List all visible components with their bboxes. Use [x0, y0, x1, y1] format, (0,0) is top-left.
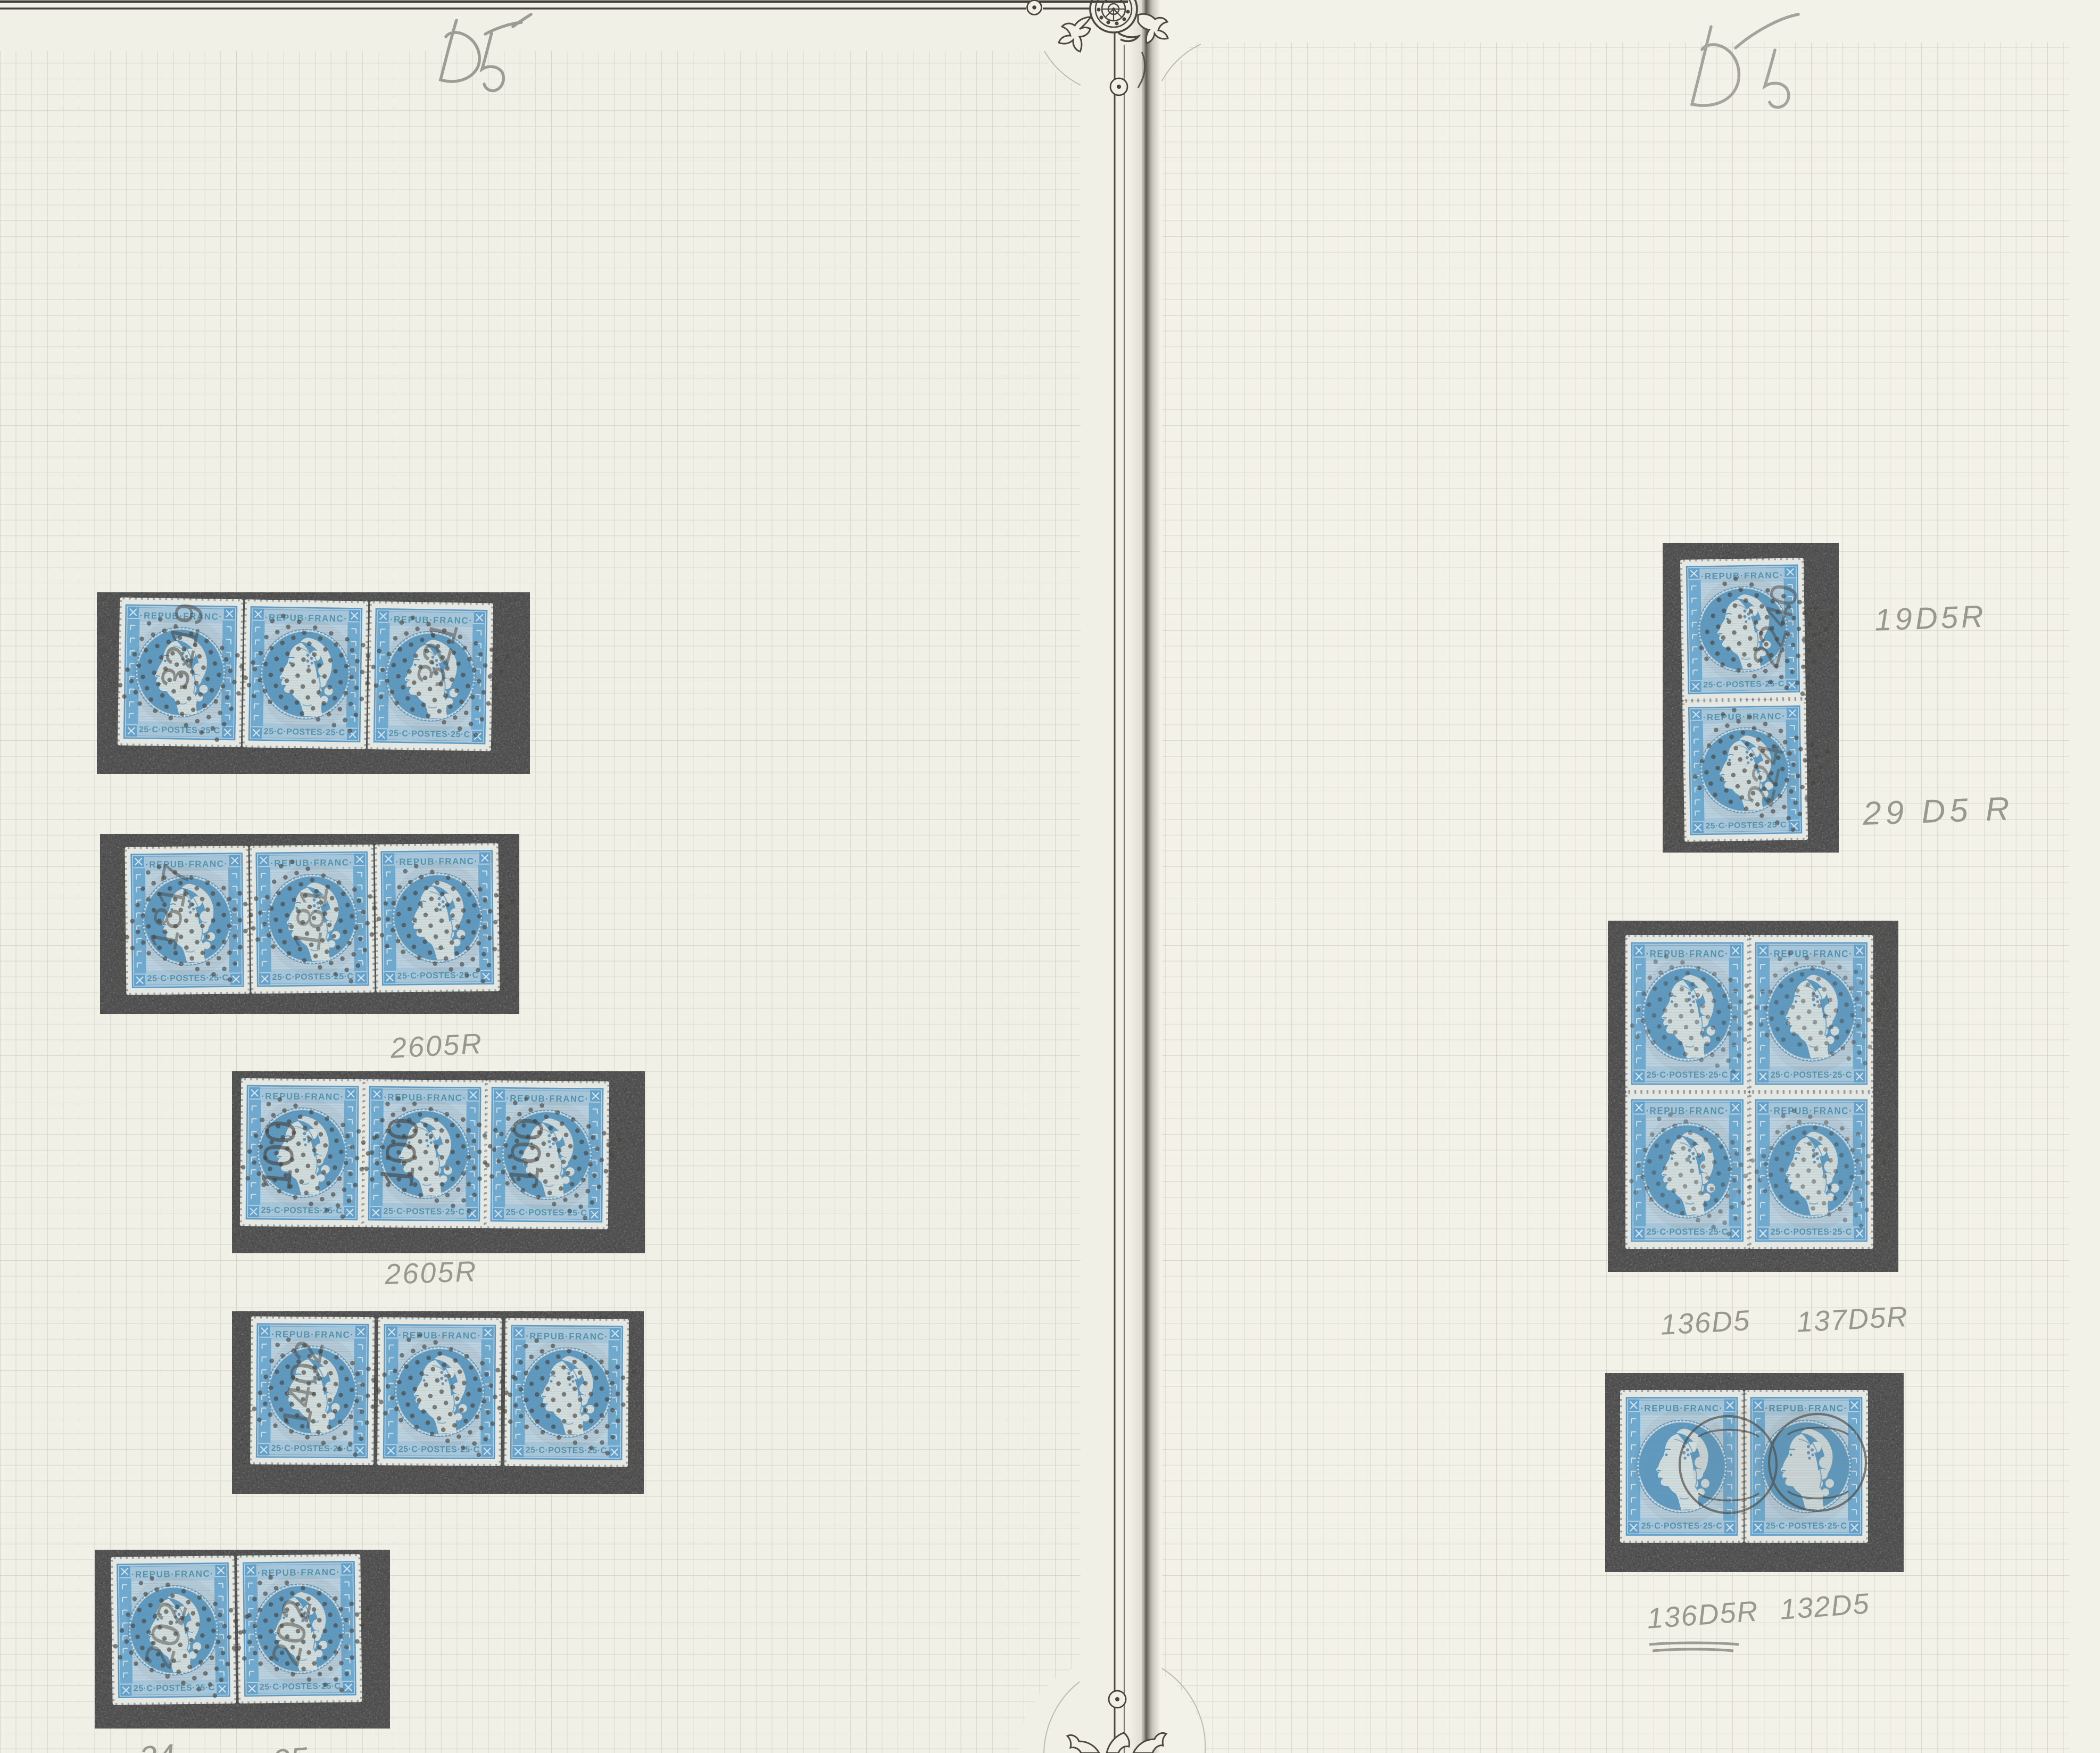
svg-text:136D5: 136D5: [1659, 1304, 1751, 1341]
svg-text:24: 24: [137, 1737, 176, 1753]
svg-text:100: 100: [499, 1115, 552, 1190]
svg-text:132D5: 132D5: [1779, 1587, 1871, 1626]
svg-text:19D5R: 19D5R: [1874, 599, 1987, 638]
svg-text:137D5R: 137D5R: [1796, 1301, 1909, 1338]
svg-text:100: 100: [374, 1115, 427, 1190]
svg-text:181: 181: [284, 882, 337, 954]
svg-text:100: 100: [252, 1118, 305, 1193]
svg-text:2605R: 2605R: [389, 1028, 484, 1064]
svg-text:2605R: 2605R: [384, 1255, 478, 1291]
svg-text:29 D5 R: 29 D5 R: [1862, 790, 2014, 832]
